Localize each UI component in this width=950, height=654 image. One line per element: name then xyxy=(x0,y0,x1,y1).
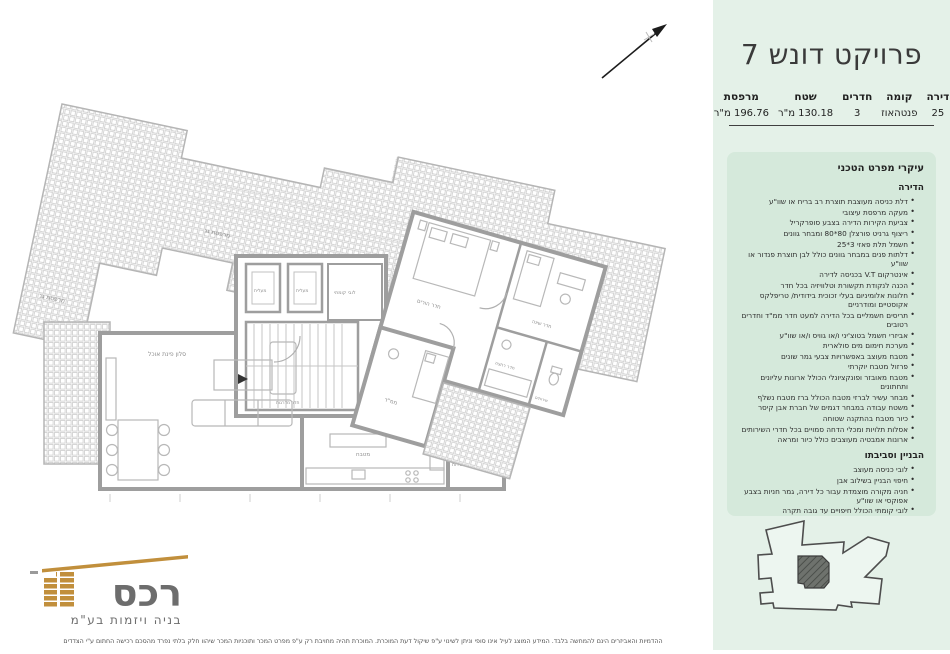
spec-item: מערכת חימום מים סולארית xyxy=(737,341,915,350)
column-value: 25 xyxy=(926,108,949,119)
disclaimer-text: ההדמיות והאביזרים הינם להמחשה בלבד. המיד… xyxy=(18,638,708,645)
spec-item: ריצוף גרניט פורצלן 80*80 ומבחר גוונים xyxy=(737,229,915,238)
apartment-table-column: קומה פנטהאוז xyxy=(881,91,917,119)
column-value: 196.76 מ"ר xyxy=(714,108,769,119)
apartment-table-column: דירה 25 xyxy=(926,91,949,119)
site-unit-marker xyxy=(798,556,829,588)
info-sidebar: פרויקט דונש 7 דירה 25 קומה פנטהאוז חדרים… xyxy=(713,0,950,650)
spec-section-heading: הבניין וסביבתו xyxy=(737,451,924,461)
spec-item: ארונות אמבטיה מעוצבים כולל כיור ומראה xyxy=(737,435,915,444)
column-header: קומה xyxy=(881,91,917,103)
spec-item: חיפוי הבניין בשילוב אבן xyxy=(737,476,915,485)
elevator-label: מעלית xyxy=(296,289,308,294)
spec-item: חלונות אלומיניום בעלי זכוכית בידודית/ טר… xyxy=(737,291,915,309)
spec-item: דלתות פנים במבחר גוונים כולל לבן תוצרת פ… xyxy=(737,250,915,268)
column-value: 3 xyxy=(842,108,872,119)
kitchen-label: מטבח xyxy=(356,452,370,458)
column-header: מרפסת xyxy=(714,91,769,103)
spec-section-heading: הדירה xyxy=(737,183,924,193)
spec-item: מטבח מעוצב באפשרויות צבעי גמר שונים xyxy=(737,352,915,361)
logo-roofline xyxy=(42,555,188,573)
spec-panel: עיקרי מפרט הטכני הדירה דלת כניסה מעוצבת … xyxy=(727,152,936,516)
living-label: סלון פינת אוכל xyxy=(148,351,186,358)
lobby-label: לובי קומתי xyxy=(334,290,356,296)
site-map xyxy=(736,516,928,640)
column-value: פנטהאוז xyxy=(881,108,917,119)
spec-item: משטח עבודה במבחר דגמים של חברת אבן קיסר xyxy=(737,403,915,412)
logo-name: רכס xyxy=(112,571,182,615)
spec-list-building: לובי כניסה מעוצבחיפוי הבניין בשילוב אבןח… xyxy=(737,465,924,515)
company-logo: רכס בניה ויזמות בע"מ xyxy=(30,550,188,630)
spec-item: אינטרקום V.T בכניסה לדירה xyxy=(737,270,915,279)
stairs-label: חדר מדרגות xyxy=(276,401,300,406)
north-arrow xyxy=(602,24,667,78)
spec-item: מעקה מרפסת עיצובי xyxy=(737,208,915,217)
spec-item: מבחר עשיר לברזי מטבח הכולל ברז מטבח נשלף xyxy=(737,393,915,402)
spec-item: תריסים חשמליים בכל הדירה למעט חדר ממ"ד ו… xyxy=(737,311,915,329)
spec-item: צביעת הקירות הדירה בצבע סופרקריל xyxy=(737,218,915,227)
column-header: דירה xyxy=(926,91,949,103)
apartment-table-column: מרפסת 196.76 מ"ר xyxy=(714,91,769,119)
spec-title: עיקרי מפרט הטכני xyxy=(737,163,924,174)
spec-item: הכנה לנקודת תקשורת וטלוויזיה בכל חדר xyxy=(737,281,915,290)
spec-item: אסלות תלויות ומכלי הדחה סמויים בכל חדרי … xyxy=(737,425,915,434)
spec-item: חשמל תלת פאזי 3*25 xyxy=(737,240,915,249)
spec-item: לובי כניסה מעוצב xyxy=(737,465,915,474)
building-icon xyxy=(44,572,74,607)
column-header: שטח xyxy=(778,91,833,103)
spec-item: אביזרי חשמל בטוצ'יני ו/או גוויס ו/או שוו… xyxy=(737,331,915,340)
apartment-table-column: חדרים 3 xyxy=(842,91,872,119)
column-value: 130.18 מ"ר xyxy=(778,108,833,119)
logo-dash xyxy=(30,571,38,574)
spec-item: דלת כניסה מעוצבת תוצרת רב בריח או שוו"ע xyxy=(737,197,915,206)
spec-item: מטבח מאובזר ופונקציונלי הכולל ארונות עלי… xyxy=(737,373,915,391)
spec-list-apartment: דלת כניסה מעוצבת תוצרת רב בריח או שוו"עמ… xyxy=(737,197,924,444)
spec-item: פרזול מטבח יוקרתי xyxy=(737,362,915,371)
spec-item: חניה מקורה מוצמדת עבור כל דירה, גמר חניו… xyxy=(737,487,915,505)
column-header: חדרים xyxy=(842,91,872,103)
spec-item: כיור מטבח בהתקנה שטוחה xyxy=(737,414,915,423)
apartment-table: דירה 25 קומה פנטהאוז חדרים 3 שטח 130.18 … xyxy=(729,91,934,126)
logo-tagline: בניה ויזמות בע"מ xyxy=(71,613,182,627)
project-title: פרויקט דונש 7 xyxy=(727,38,936,71)
apartment-table-column: שטח 130.18 מ"ר xyxy=(778,91,833,119)
spec-item: לובי קומתי הכולל חיפויים עד גובה תקרה xyxy=(737,506,915,515)
elevator-label: מעלית xyxy=(254,289,266,294)
